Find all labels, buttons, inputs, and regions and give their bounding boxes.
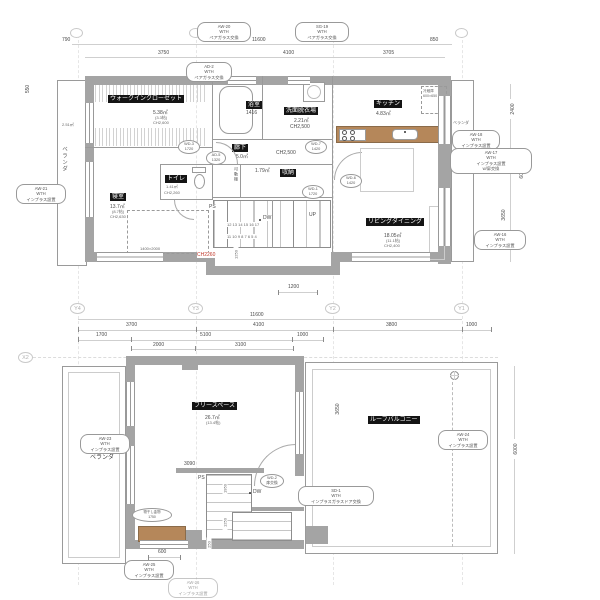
dim-250: 250 — [207, 538, 212, 552]
window — [85, 103, 94, 143]
washroom-ch: CH2,500 — [290, 124, 310, 130]
dim-2400: 2400 — [510, 99, 516, 119]
fridge-label: 冷蔵庫 600×650 — [423, 89, 437, 98]
dim-mid-4100: 4100 — [253, 322, 264, 328]
dim-3650-upper: 3650 — [501, 205, 507, 225]
bed-size: 1400×2000 — [140, 246, 160, 251]
room-badge-washroom: 洗面脱衣場 — [284, 107, 318, 115]
stair-center-line — [272, 200, 273, 248]
room-badge-bedroom: 寝室 — [110, 193, 126, 201]
window-tag-aw20: AW-20 W7H ペアガラス交換 — [197, 22, 251, 42]
bedroom-ch: CH2,630 — [110, 214, 126, 219]
dim-mid-1000b: 1000 — [297, 332, 308, 338]
dim-1250-lower: 1250 — [223, 514, 228, 532]
grid-bubble — [455, 28, 468, 38]
wall-segment — [182, 356, 198, 370]
dim-mid-11600: 11600 — [250, 312, 264, 318]
hanger-hardware-tag: 物干し金物 1750 — [132, 508, 172, 522]
dim-line — [85, 57, 445, 58]
dim-line — [72, 44, 452, 45]
window-tag-aw16: AW-16 W7H インプラス設置 — [474, 230, 526, 250]
dw-label-lower: DW — [253, 489, 261, 495]
grid-bubble-x2: X2 — [18, 352, 33, 363]
grid-bubble — [70, 28, 83, 38]
dim-mid-3700: 3700 — [126, 322, 137, 328]
stove-burner-icon — [350, 130, 355, 135]
window — [126, 382, 135, 426]
dim-line — [131, 349, 293, 350]
door-tag-wd1: WD-1 1720 — [302, 185, 324, 199]
window — [438, 188, 451, 246]
storage-area: 1.79㎡ — [255, 167, 270, 174]
window-tag-aw26: AW-26 W7H インプラス設置 — [168, 578, 218, 598]
window-tag-aw25: AW-25 W7H インプラス設置 — [124, 560, 174, 580]
storage-shelf-label: 可動棚 — [233, 167, 239, 195]
window — [126, 446, 135, 504]
washroom-area: 2.21㎡ — [294, 117, 309, 124]
room-badge-hall: 廊下 — [232, 144, 248, 152]
dim-600: 600 — [158, 549, 166, 555]
dim-tick — [196, 327, 197, 332]
closet-ch: CH2,600 — [153, 120, 169, 125]
dim-tick — [78, 327, 79, 332]
stair-numbers-bottom: 11 10 9 8 7 6 5 4 — [226, 234, 258, 239]
veranda-left-area: 2.51㎡ — [62, 122, 74, 128]
room-badge-kitchen: キッチン — [374, 100, 402, 108]
kitchen-area: 4.83㎡ — [376, 110, 391, 117]
dim-tick — [131, 337, 132, 342]
dim-11600-top: 11600 — [252, 37, 266, 43]
dim-850: 850 — [430, 37, 438, 43]
partition — [212, 76, 213, 199]
door-tag-sd1: SD-1 W7H インプラスガラスドア交換 — [298, 486, 374, 506]
stove-burner-icon — [342, 136, 347, 141]
dim-1250-upper: 1250 — [234, 247, 239, 263]
dim-1200: 1200 — [288, 284, 299, 290]
partition — [240, 164, 241, 197]
window — [140, 540, 188, 549]
grid-bubble-y1: Y1 — [454, 303, 469, 314]
dim-1950: 1950 — [223, 480, 228, 498]
window — [288, 76, 310, 85]
stove-burner-icon — [350, 136, 355, 141]
wall-segment — [176, 468, 264, 473]
toilet-bowl-icon — [194, 174, 205, 189]
dim-line — [514, 366, 515, 554]
balcony-dashed-line — [452, 382, 453, 547]
wc-ch: CH2,260 — [164, 190, 180, 195]
dim-3705: 3705 — [383, 50, 394, 56]
window — [295, 392, 304, 454]
drain-cross — [450, 375, 459, 376]
door-tag-wd2: WD-2 扉交換 — [260, 474, 284, 488]
room-badge-free-space: フリースペース — [192, 402, 237, 410]
partition — [262, 76, 263, 140]
room-badge-roof-balcony: ルーフバルコニー — [368, 416, 420, 424]
grid-bubble-y3: Y3 — [188, 303, 203, 314]
window-tag-sg19: SG-19 W7H ペアガラス交換 — [295, 22, 349, 42]
partition — [160, 164, 333, 165]
dim-mid-2000: 2000 — [153, 342, 164, 348]
partition — [160, 164, 161, 200]
window-tag-aw17: AW-17 W7H インプラス設置 w/扉交換 — [450, 148, 532, 174]
wall-segment — [206, 266, 340, 275]
dim-tick — [195, 346, 196, 351]
window — [352, 252, 430, 262]
dim-3090: 3090 — [184, 461, 195, 467]
grid-bubble-y4: Y4 — [70, 303, 85, 314]
wall-segment — [126, 356, 304, 365]
dim-4100-top: 4100 — [283, 50, 294, 56]
door-tag-wd3: WD-3 1720 — [178, 140, 200, 154]
dim-tick — [462, 327, 463, 332]
veranda-lower-inner — [68, 372, 120, 558]
dim-3750: 3750 — [158, 50, 169, 56]
room-badge-wc: トイレ — [165, 175, 187, 183]
room-badge-storage: 収納 — [280, 169, 296, 177]
veranda-left-label: ベランダ — [60, 146, 68, 188]
window — [85, 162, 94, 217]
up-label: UP — [309, 212, 316, 218]
door-tag-ad5: AD-5 1320 — [206, 151, 226, 165]
dim-tick — [78, 337, 79, 342]
dim-mid-1700: 1700 — [96, 332, 107, 338]
dim-line — [278, 292, 318, 293]
dw-label: DW — [263, 215, 271, 221]
window-tag-aw23: AW-23 W7H インプラス設置 — [80, 434, 130, 454]
window — [97, 252, 163, 262]
window-tag-aw24: AW-24 W7H インプラス設置 — [438, 430, 488, 450]
dim-line — [148, 557, 180, 558]
dim-tick — [131, 346, 132, 351]
hall-ch: CH2,500 — [276, 150, 296, 156]
living-ch: CH2,400 — [384, 243, 400, 248]
room-badge-living: リビングダイニング — [366, 218, 424, 226]
window-tag-ad2: AD-2 W7H ペアガラス交換 — [186, 62, 232, 82]
dim-mid-3100: 3100 — [235, 342, 246, 348]
dim-line — [78, 330, 492, 331]
dim-tick — [323, 337, 324, 342]
dim-6000-lower: 6000 — [513, 439, 519, 459]
stair-treads — [232, 512, 292, 541]
dim-mid-1000a: 1000 — [466, 322, 477, 328]
roof-balcony-inner — [312, 369, 491, 547]
toilet-tank-icon — [192, 167, 206, 173]
bath-size: 1416 — [246, 110, 257, 116]
stair-numbers-top: 12 13 14 15 16 17 — [226, 222, 260, 227]
door-tag-wd6: WD-6 1420 — [340, 174, 362, 188]
dim-tick — [293, 346, 294, 351]
dim-tick — [491, 327, 492, 332]
dining-table — [360, 148, 414, 192]
dim-tick — [333, 327, 334, 332]
wall-segment — [331, 252, 340, 275]
washing-machine-drum-icon — [307, 85, 321, 99]
dim-790: 790 — [62, 37, 70, 43]
dim-tick — [292, 337, 293, 342]
dim-tick — [317, 290, 318, 295]
dim-tick — [180, 555, 181, 560]
wall-segment — [186, 530, 202, 546]
window-tag-aw21: AW-21 W7H インプラス設置 — [16, 184, 66, 204]
hall-area: 5.0㎡ — [236, 153, 248, 160]
door-tag-wd7: WD-7 1420 — [305, 140, 327, 154]
dim-mid-3800: 3800 — [386, 322, 397, 328]
stair-ch-red: CH2260 — [197, 252, 215, 258]
window — [438, 96, 451, 144]
window — [228, 76, 256, 85]
dim-line — [78, 319, 462, 320]
stove-burner-icon — [342, 130, 347, 135]
ps-label-lower: PS — [198, 475, 205, 481]
grid-bubble-y2: Y2 — [325, 303, 340, 314]
dim-550: 550 — [25, 79, 31, 99]
dim-3650-lower: 3650 — [335, 399, 341, 419]
veranda-right-label: ベランダ — [453, 120, 469, 126]
wall-segment — [306, 526, 328, 544]
dim-tick — [278, 290, 279, 295]
room-badge-bath: 浴室 — [246, 101, 262, 109]
free-space-tatami: (13.4帖) — [206, 420, 220, 426]
dim-mid-5100: 5100 — [200, 332, 211, 338]
ps-label: PS — [209, 204, 216, 210]
dim-line — [78, 340, 324, 341]
room-badge-closet: ウォークインクローゼット — [108, 95, 184, 103]
floor-plan-drawing: 790 11600 850 3750 4100 3705 AW-20 W7H ペ… — [0, 0, 600, 600]
